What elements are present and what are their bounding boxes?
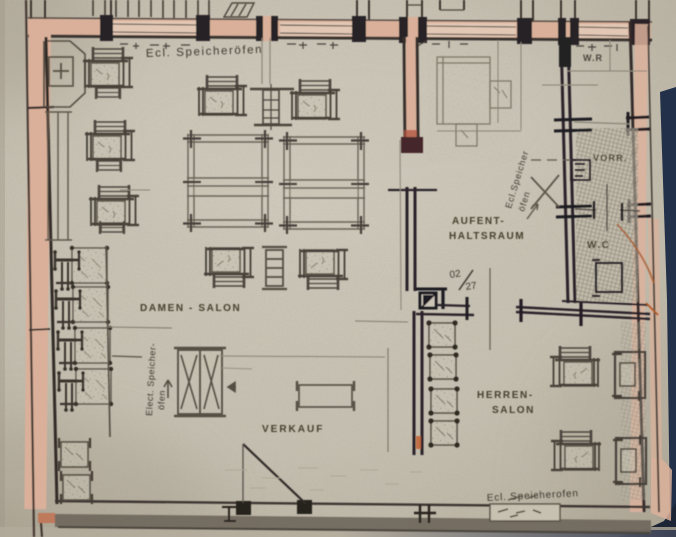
svg-text:W.R: W.R	[583, 53, 603, 63]
svg-text:DAMEN - SALON: DAMEN - SALON	[140, 303, 241, 314]
svg-text:27: 27	[465, 280, 478, 293]
svg-text:02: 02	[449, 268, 462, 281]
svg-text:öfen: öfen	[156, 390, 167, 410]
svg-text:VORR.: VORR.	[593, 153, 628, 163]
svg-text:AUFENT-: AUFENT-	[452, 216, 505, 227]
svg-text:HALTSRAUM: HALTSRAUM	[449, 231, 525, 242]
svg-text:W.C: W.C	[587, 240, 610, 251]
svg-text:SALON: SALON	[492, 405, 535, 416]
svg-text:HERREN-: HERREN-	[477, 390, 534, 401]
svg-text:VERKAUF: VERKAUF	[262, 424, 324, 435]
